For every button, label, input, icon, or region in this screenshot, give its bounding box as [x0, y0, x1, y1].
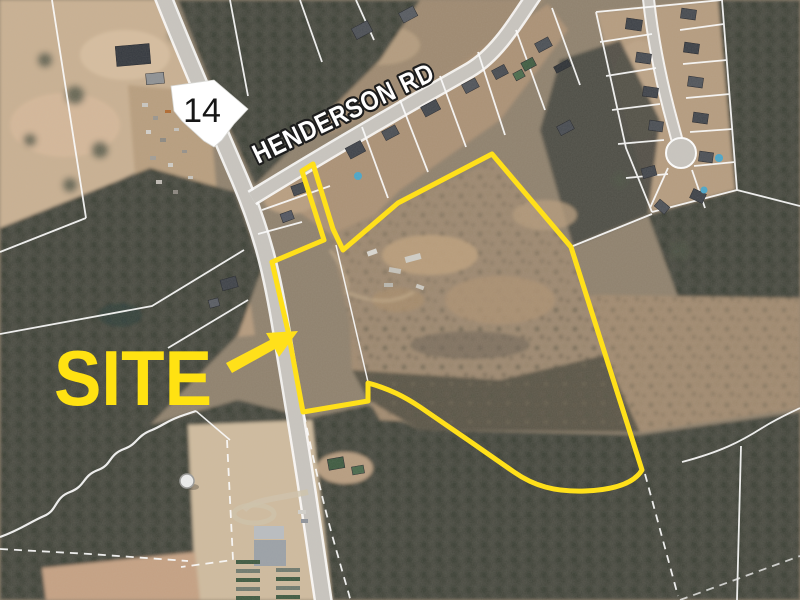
- route-14-shield-number: 14: [183, 92, 221, 130]
- aerial-imagery: SITE HENDERSON RD 14: [0, 0, 800, 600]
- aerial-site-map: SITE HENDERSON RD 14: [0, 0, 800, 600]
- site-label: SITE: [54, 334, 212, 422]
